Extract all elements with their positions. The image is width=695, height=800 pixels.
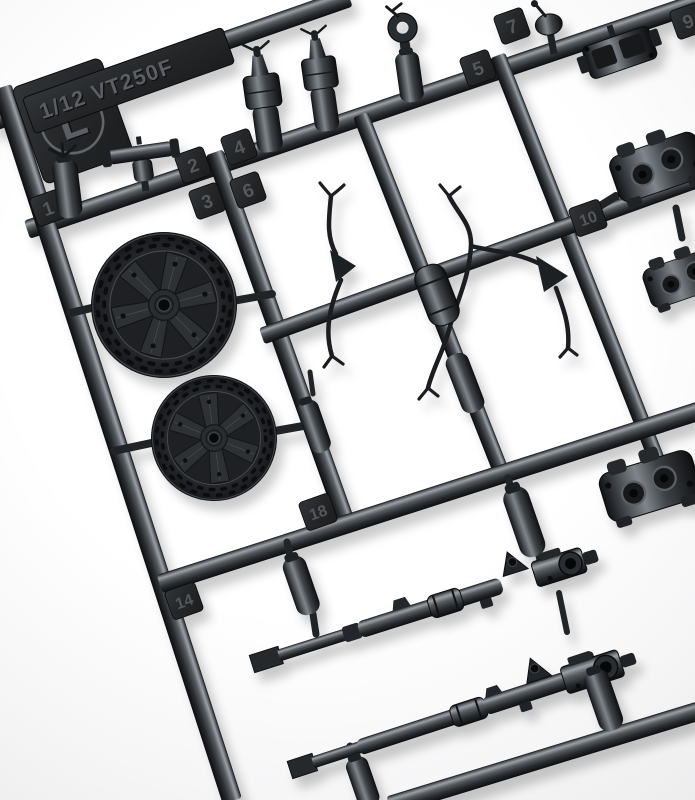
sprue-photo: L L 1/12 VT250F 1/12 VT250F 1 2	[0, 0, 695, 800]
sprue-illustration: L L 1/12 VT250F 1/12 VT250F 1 2	[0, 0, 695, 800]
sprue-runner-frame	[0, 0, 695, 800]
